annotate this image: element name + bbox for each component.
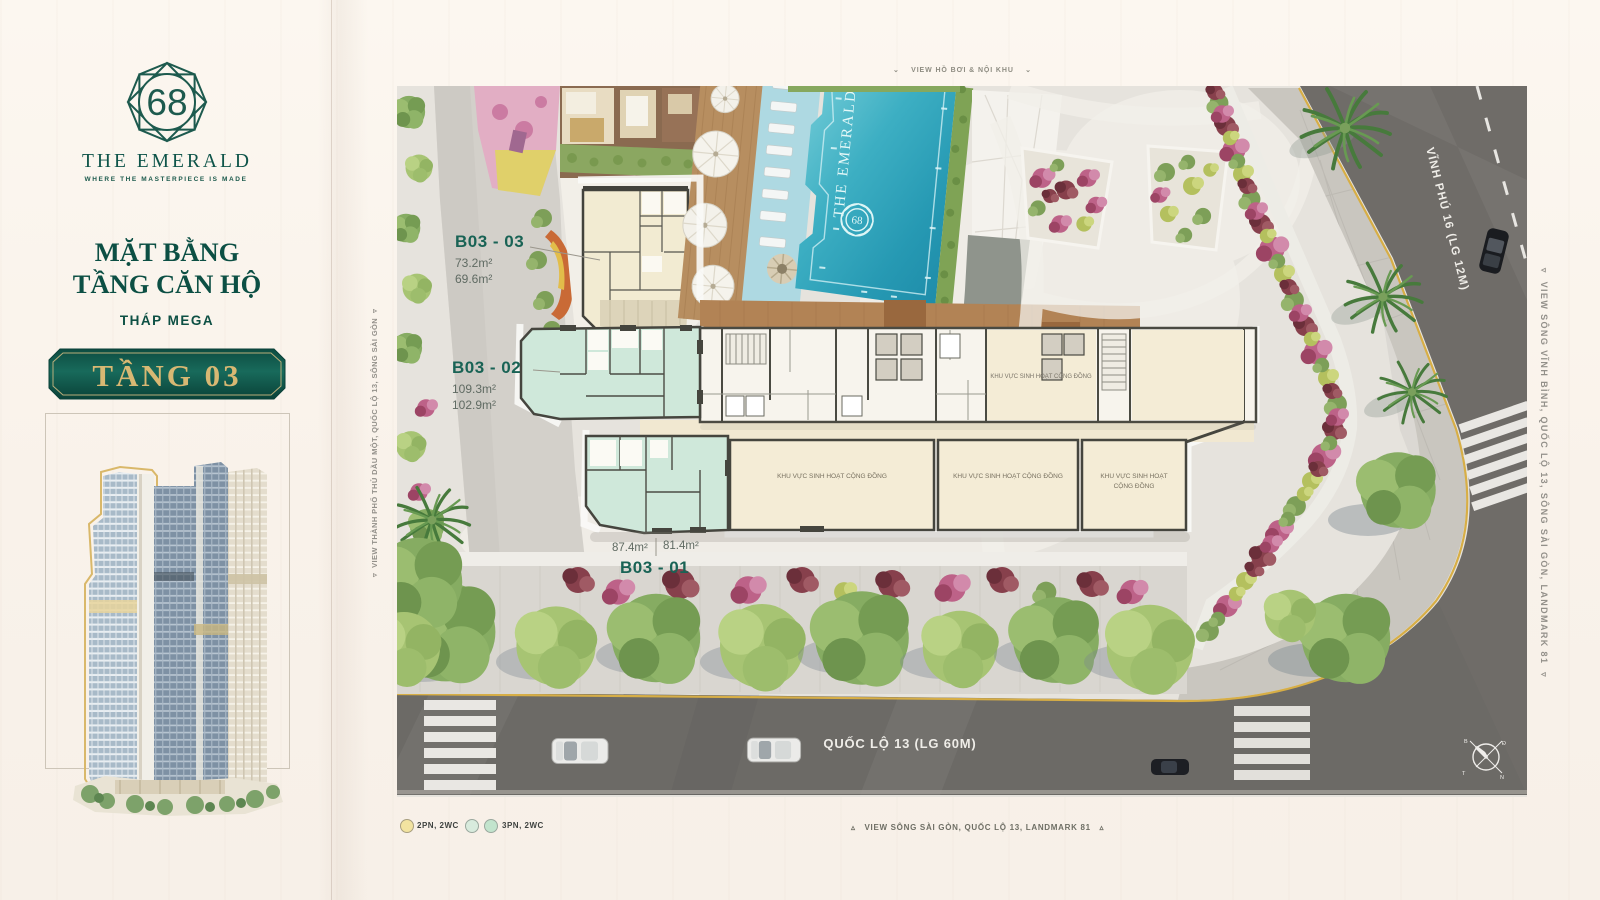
- svg-text:KHU VỰC SINH HOẠT: KHU VỰC SINH HOẠT: [1100, 473, 1167, 480]
- svg-text:68: 68: [851, 214, 864, 227]
- svg-text:QUỐC LỘ 13 (LG 60M): QUỐC LỘ 13 (LG 60M): [823, 736, 976, 751]
- svg-text:TẦNG 03: TẦNG 03: [92, 357, 241, 393]
- svg-text:B: B: [1464, 739, 1468, 745]
- svg-text:KHU VỰC SINH HOẠT CỘNG ĐỒNG: KHU VỰC SINH HOẠT CỘNG ĐỒNG: [990, 373, 1092, 380]
- svg-text:68: 68: [146, 82, 187, 123]
- svg-text:Đ: Đ: [1502, 741, 1506, 747]
- svg-text:N: N: [1500, 775, 1504, 781]
